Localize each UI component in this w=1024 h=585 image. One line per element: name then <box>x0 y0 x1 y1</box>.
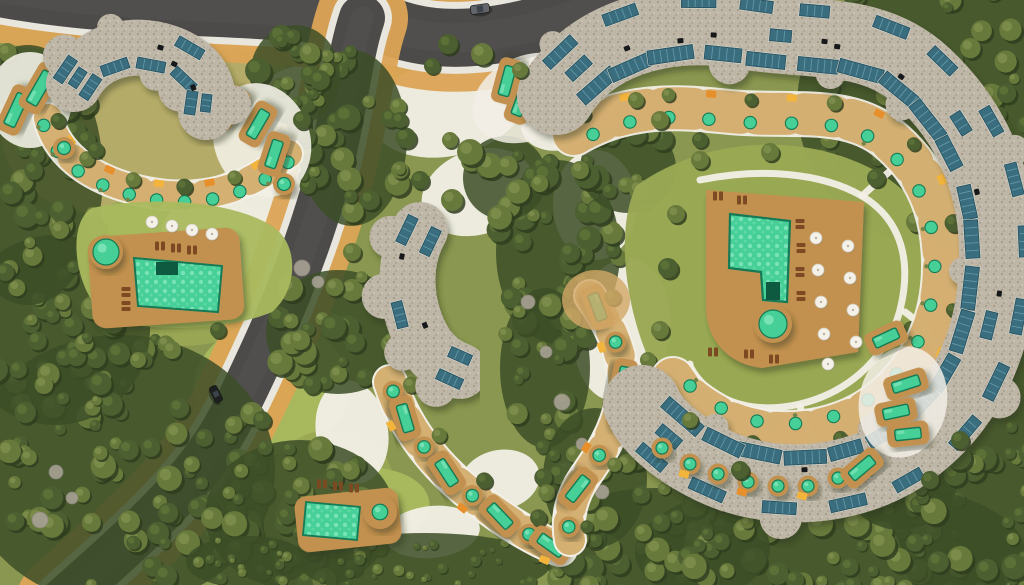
tree-highlight <box>321 64 328 71</box>
tree-highlight <box>555 339 567 351</box>
pool-glint <box>658 444 662 448</box>
parasol-pole <box>211 233 213 235</box>
shrub <box>694 378 698 382</box>
tree-highlight <box>532 511 539 518</box>
tree-highlight <box>997 53 1007 63</box>
tree-highlight <box>340 170 351 181</box>
tree-highlight <box>885 577 890 582</box>
lounger <box>349 484 353 493</box>
pool-glint <box>764 315 774 325</box>
tree-highlight <box>545 430 550 435</box>
tree-highlight <box>338 108 350 120</box>
round-pool <box>712 468 724 480</box>
tree-highlight <box>604 186 611 193</box>
tree-highlight <box>515 235 524 244</box>
aerial-resort-render <box>0 0 1024 585</box>
panel-stripe <box>812 451 813 464</box>
lounger <box>323 480 327 489</box>
tree-highlight <box>12 363 20 371</box>
round-pool <box>466 489 478 501</box>
tree-highlight <box>873 535 884 546</box>
tree-highlight <box>667 553 677 563</box>
tree-highlight <box>509 406 519 416</box>
round-pool <box>656 442 668 454</box>
tree-highlight <box>37 378 45 386</box>
tree-highlight <box>661 261 670 270</box>
tree-highlight <box>128 537 134 543</box>
round-pool <box>58 142 71 155</box>
tree-highlight <box>743 518 749 524</box>
tree-highlight <box>0 45 9 54</box>
pool-glint <box>389 387 393 391</box>
terrace-plunge-pool <box>924 299 936 311</box>
tree-highlight <box>295 113 303 121</box>
tree-highlight <box>509 182 520 193</box>
tree-highlight <box>81 153 88 160</box>
tree-highlight <box>259 442 266 449</box>
lounger <box>317 480 321 489</box>
car-windshield <box>476 5 483 12</box>
lounger <box>737 196 741 205</box>
tree-highlight <box>817 577 822 582</box>
tree-highlight <box>285 491 292 498</box>
tree-highlight <box>277 551 279 553</box>
tree-highlight <box>392 100 399 107</box>
tree-highlight <box>373 565 378 570</box>
terrace-plunge-pool <box>234 185 246 197</box>
pool-glint <box>612 338 616 342</box>
round-pool <box>593 449 605 461</box>
pool-glint <box>375 507 380 512</box>
lounger <box>122 287 131 291</box>
tree-highlight <box>332 368 340 376</box>
shrub <box>862 141 866 145</box>
tree-highlight <box>35 212 42 219</box>
tree-highlight <box>908 536 916 544</box>
tree-highlight <box>143 440 152 449</box>
tree-highlight <box>573 163 581 171</box>
tree-highlight <box>284 444 290 450</box>
tree-highlight <box>217 574 222 579</box>
tree-highlight <box>642 354 649 361</box>
tree-highlight <box>542 297 552 307</box>
tree-highlight <box>43 489 54 500</box>
tree-highlight <box>165 343 173 351</box>
tree-highlight <box>635 488 643 496</box>
tree-highlight <box>693 153 701 161</box>
tree-highlight <box>53 202 64 213</box>
pool-glint <box>280 180 285 185</box>
tree-highlight <box>326 470 335 479</box>
tree-highlight <box>947 216 955 224</box>
tree-highlight <box>496 559 499 562</box>
tree-highlight <box>311 439 322 450</box>
lounger <box>161 242 165 251</box>
lounger <box>775 355 779 364</box>
tree-highlight <box>653 323 661 331</box>
tree-highlight <box>303 324 309 330</box>
tree-highlight <box>542 415 547 420</box>
pool-glint <box>420 443 424 447</box>
tree-highlight <box>974 23 983 32</box>
tree-highlight <box>654 516 662 524</box>
tree-highlight <box>1007 422 1012 427</box>
parasol-pole <box>852 309 854 311</box>
parasol-pole <box>855 341 857 343</box>
lounger <box>719 192 723 201</box>
tree-highlight <box>660 484 666 490</box>
tree-highlight <box>583 156 588 161</box>
tree-highlight <box>514 279 520 285</box>
parasol-pole <box>817 269 819 271</box>
tree-highlight <box>269 541 273 545</box>
tree-highlight <box>953 433 961 441</box>
tree-highlight <box>721 565 728 572</box>
tree-highlight <box>279 577 283 581</box>
parasol-pole <box>171 225 173 227</box>
tree-highlight <box>551 467 560 476</box>
tree-highlight <box>305 378 313 386</box>
tree-highlight <box>95 448 101 454</box>
tree-highlight <box>303 67 312 76</box>
tree-highlight <box>398 130 407 139</box>
tree-highlight <box>948 305 954 311</box>
shrub <box>924 264 928 268</box>
tree-highlight <box>520 580 524 584</box>
tree-highlight <box>339 358 344 363</box>
tree-highlight <box>733 463 741 471</box>
tree-highlight <box>216 538 219 541</box>
tree-highlight <box>527 577 532 582</box>
tree-highlight <box>121 513 131 523</box>
lounger <box>750 350 754 359</box>
tree-highlight <box>317 127 327 137</box>
tree-highlight <box>554 567 559 572</box>
tree-highlight <box>91 421 96 426</box>
terrace-plunge-pool <box>789 417 801 429</box>
tree-highlight <box>923 535 928 540</box>
tree-highlight <box>684 414 691 421</box>
tree-highlight <box>357 273 362 278</box>
tree-highlight <box>630 94 637 101</box>
tree-highlight <box>434 430 441 437</box>
terrace-plunge-pool <box>715 402 727 414</box>
tree-highlight <box>204 510 214 520</box>
tree-highlight <box>224 488 230 494</box>
tree-highlight <box>172 401 181 410</box>
tree-highlight <box>239 569 243 573</box>
tree-highlight <box>478 474 485 481</box>
panel-glass <box>200 94 212 113</box>
tree-highlight <box>178 181 185 188</box>
terrace-plunge-pool <box>861 130 873 142</box>
tree-highlight <box>944 4 949 9</box>
tree-highlight <box>597 510 608 521</box>
panel-stripe <box>819 450 820 463</box>
terrace-plunge-pool <box>206 193 218 205</box>
solar-panel <box>783 448 828 466</box>
tree-highlight <box>930 554 939 563</box>
tree-highlight <box>345 582 348 585</box>
tree-highlight <box>444 134 451 141</box>
tree-highlight <box>763 145 771 153</box>
tree-highlight <box>128 174 135 181</box>
tree-highlight <box>460 142 472 154</box>
parasol-pole <box>823 333 825 335</box>
tree-highlight <box>347 335 356 344</box>
shrub <box>126 198 130 202</box>
tree-highlight <box>562 245 571 254</box>
rock <box>49 465 63 479</box>
roof-vent <box>801 467 807 472</box>
solar-panel <box>199 93 213 114</box>
tree-highlight <box>248 61 260 73</box>
tree-highlight <box>150 524 160 534</box>
tree-highlight <box>31 150 38 157</box>
terrace-plunge-pool <box>744 116 756 128</box>
lounger <box>193 246 197 255</box>
tree-highlight <box>346 191 352 197</box>
tree-highlight <box>568 448 576 456</box>
tree-highlight <box>280 509 288 517</box>
tree-highlight <box>663 90 669 96</box>
tree-highlight <box>835 433 842 440</box>
tree-highlight <box>355 556 360 561</box>
pool-lap-lane <box>766 282 780 300</box>
tree-highlight <box>228 555 232 559</box>
tree-highlight <box>320 578 323 581</box>
tree-highlight <box>414 543 417 546</box>
lounger <box>155 242 159 251</box>
masterplan-scene <box>0 0 1024 585</box>
tree-highlight <box>455 581 458 584</box>
tree-highlight <box>358 371 366 379</box>
tree-highlight <box>69 349 78 358</box>
tree-highlight <box>715 535 723 543</box>
lounger <box>796 267 805 271</box>
tree-highlight <box>843 560 851 568</box>
tree-highlight <box>537 471 545 479</box>
tree-highlight <box>345 203 355 213</box>
pool-glint <box>98 244 107 253</box>
tree-highlight <box>346 47 352 53</box>
terrace-plunge-pool <box>785 117 797 129</box>
tree-highlight <box>144 559 153 568</box>
tree-highlight <box>25 248 34 257</box>
tree-highlight <box>10 478 16 484</box>
tree-highlight <box>344 463 352 471</box>
tree-highlight <box>669 207 677 215</box>
tree-highlight <box>703 529 708 534</box>
pool-glint <box>525 530 529 534</box>
lounger <box>187 246 191 255</box>
lounger <box>122 293 131 297</box>
round-pool <box>684 458 696 470</box>
tree-highlight <box>540 486 548 494</box>
tree-highlight <box>110 345 120 355</box>
terrace-plunge-pool <box>929 260 941 272</box>
round-pool <box>93 239 119 265</box>
tree-highlight <box>471 557 476 562</box>
tree-highlight <box>121 442 130 451</box>
shrub <box>908 336 912 340</box>
tree-highlight <box>2 184 12 194</box>
tree-highlight <box>190 500 199 509</box>
tree-highlight <box>684 557 695 568</box>
tree-highlight <box>671 512 677 518</box>
pool-glint <box>468 492 472 496</box>
tree-highlight <box>158 567 168 577</box>
terrace-plunge-pool <box>751 415 763 427</box>
tree-highlight <box>0 442 11 453</box>
tree-highlight <box>441 37 450 46</box>
terrace-deck <box>562 270 630 330</box>
tree-highlight <box>30 334 38 342</box>
tree-highlight <box>512 340 520 348</box>
tree-highlight <box>90 144 97 151</box>
terrace-unit <box>886 420 930 448</box>
rock <box>554 394 570 410</box>
round-pool <box>609 336 621 348</box>
tree-highlight <box>503 290 512 299</box>
tree-highlight <box>549 451 554 456</box>
terrace-plunge-pool <box>97 179 109 191</box>
solar-panel <box>962 219 981 260</box>
tree-highlight <box>788 573 796 581</box>
awning <box>706 90 717 98</box>
pool-glint <box>686 460 690 464</box>
rock <box>32 512 48 528</box>
pool-glint <box>774 482 778 486</box>
lounger <box>797 243 806 247</box>
lounger <box>797 297 806 301</box>
tree-highlight <box>474 46 484 56</box>
tree-highlight <box>384 111 392 119</box>
tree-highlight <box>858 542 863 547</box>
tree-highlight <box>13 172 23 182</box>
tree-highlight <box>271 353 282 364</box>
tree-highlight <box>963 40 972 49</box>
lounger <box>355 484 359 493</box>
tree-highlight <box>490 548 492 550</box>
tree-highlight <box>829 97 836 104</box>
tree-highlight <box>923 473 931 481</box>
tree-highlight <box>58 394 64 400</box>
tree-highlight <box>828 553 834 559</box>
tree-highlight <box>236 466 242 472</box>
shrub <box>98 188 102 192</box>
tree-highlight <box>407 572 411 576</box>
tree-highlight <box>514 375 519 380</box>
tree-highlight <box>234 495 239 500</box>
solar-panel <box>761 500 798 516</box>
tree-highlight <box>500 329 506 335</box>
round-pool <box>759 310 787 338</box>
tree-highlight <box>694 541 700 547</box>
tree-highlight <box>26 238 31 243</box>
rock <box>312 276 324 288</box>
round-pool <box>418 441 430 453</box>
terrace-plunge-pool <box>825 119 837 131</box>
terrace-plunge-pool <box>703 113 715 125</box>
tree-highlight <box>1003 518 1008 523</box>
solar-panel <box>768 28 793 44</box>
roof-vent <box>834 44 841 50</box>
tree-highlight <box>194 558 199 563</box>
rock <box>540 346 552 358</box>
tree-highlight <box>1010 75 1015 80</box>
solar-panel <box>680 0 717 9</box>
pool-glint <box>834 474 838 478</box>
tree-highlight <box>225 514 236 525</box>
tree-highlight <box>309 90 314 95</box>
tree-highlight <box>430 541 434 545</box>
lounger <box>796 219 805 223</box>
pool-lap-lane <box>156 262 178 275</box>
shrub <box>266 182 270 186</box>
tree-highlight <box>287 31 294 38</box>
shrub <box>36 125 40 129</box>
tree-highlight <box>23 451 30 458</box>
pool <box>303 502 360 540</box>
tree-highlight <box>313 73 322 82</box>
tree-highlight <box>950 549 961 560</box>
tree-highlight <box>372 574 375 577</box>
tree-highlight <box>160 469 171 480</box>
tree-highlight <box>168 425 178 435</box>
tree-highlight <box>648 541 659 552</box>
tree-highlight <box>590 535 596 541</box>
tree-highlight <box>277 36 283 42</box>
lounger <box>797 249 806 253</box>
tree-highlight <box>229 172 235 178</box>
tree-highlight <box>58 351 65 358</box>
tree-highlight <box>8 514 17 523</box>
tree-highlight <box>160 539 165 544</box>
parasol-pole <box>191 229 193 231</box>
tree-highlight <box>438 564 443 569</box>
tree-highlight <box>500 158 509 167</box>
tree-highlight <box>56 425 61 430</box>
tree-highlight <box>69 262 75 268</box>
tree-highlight <box>1008 534 1014 540</box>
round-pool <box>387 385 399 397</box>
panel-stripe <box>791 452 792 465</box>
tree-highlight <box>694 134 701 141</box>
pool-glint <box>565 523 569 527</box>
lounger <box>797 291 806 295</box>
rock <box>521 295 535 309</box>
panel-glass <box>964 220 980 259</box>
tree-highlight <box>151 335 156 340</box>
lounger <box>708 348 712 357</box>
tree-highlight <box>324 317 335 328</box>
lounger <box>339 482 343 491</box>
tree-highlight <box>83 334 88 339</box>
tree-highlight <box>1002 21 1012 31</box>
tree-highlight <box>1005 557 1016 568</box>
tree-highlight <box>197 479 203 485</box>
tree-highlight <box>322 51 328 57</box>
terrace-plunge-pool <box>891 153 903 165</box>
tree-highlight <box>909 139 915 145</box>
parasol-pole <box>827 363 829 365</box>
tree-highlight <box>363 193 372 202</box>
shrub <box>920 301 924 305</box>
tree-highlight <box>27 164 35 172</box>
rock <box>294 260 310 276</box>
lounger <box>333 482 337 491</box>
